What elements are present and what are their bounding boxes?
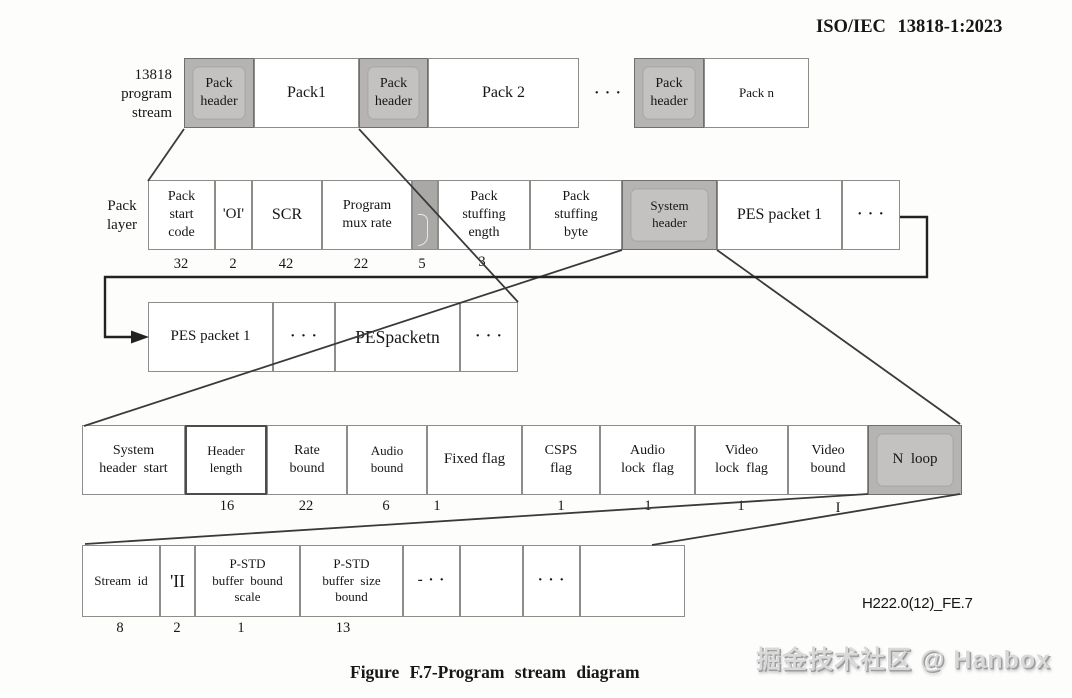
system-header-box: System header — [622, 180, 717, 250]
bitwidth-program-mux-rate: 22 — [346, 256, 376, 273]
figure-page: ISO/IEC 13818-1:2023 13818 program strea… — [0, 0, 1072, 698]
video-lock-flag-box: Video lock flag — [695, 425, 788, 495]
bitwidth-marker-bits: 2 — [218, 256, 248, 273]
audio-lock-flag-box: Audio lock flag — [600, 425, 695, 495]
pes-layer-ellipsis-1-box: · · · — [273, 302, 335, 372]
pack-layer-side-label: Pack layer — [98, 197, 146, 235]
pes-layer-packet-1-box: PES packet 1 — [148, 302, 273, 372]
standard-title: ISO/IEC 13818-1:2023 — [816, 17, 1002, 38]
stream-id-box: Stream id — [82, 545, 160, 617]
marker-bits-box: 'OI' — [215, 180, 252, 250]
pack-stuffing-byte-label: Pack stuffing byte — [554, 188, 597, 242]
pack-layer-ellipsis-box: · · · — [842, 180, 900, 250]
program-mux-rate-box: Program mux rate — [322, 180, 412, 250]
fixed-flag-label: Fixed flag — [444, 450, 505, 469]
rate-bound-label: Rate bound — [290, 442, 325, 478]
pack-ellipsis: · · · — [583, 76, 633, 112]
pack-header-2-box: Pack header — [359, 58, 428, 128]
pack-start-code-label: Pack start code — [168, 188, 195, 242]
pack-layer-ellipsis-label: · · · — [857, 205, 885, 224]
expand-line-system-header-right — [717, 250, 960, 424]
pack-stuffing-byte-box: Pack stuffing byte — [530, 180, 622, 250]
expand-line-n-loop-right — [652, 494, 960, 545]
stream-loop-ellipsis-2-label: · · · — [538, 571, 566, 590]
n-loop-label: N loop — [893, 450, 938, 469]
csps-flag-box: CSPS flag — [522, 425, 600, 495]
pack-header-1-label: Pack header — [200, 75, 237, 111]
pes-layer-packet-n-box: PESpacketn — [335, 302, 460, 372]
audio-bound-label: Audio bound — [371, 443, 404, 476]
video-lock-flag-label: Video lock flag — [715, 442, 768, 478]
audio-lock-flag-label: Audio lock flag — [621, 442, 674, 478]
pack-header-1-box: Pack header — [184, 58, 254, 128]
bitwidth-video-lock-flag: 1 — [726, 498, 756, 515]
program-stream-side-label: 13818 program stream — [96, 66, 172, 122]
bitwidth-scr: 42 — [271, 256, 301, 273]
header-length-label: Header length — [207, 443, 245, 476]
bitwidth-fixed-flag: 1 — [422, 498, 452, 515]
program-mux-rate-label: Program mux rate — [342, 197, 391, 233]
bitwidth-pack-start-code: 32 — [166, 256, 196, 273]
bitwidth-audio-bound: 6 — [371, 498, 401, 515]
reserved-box-mark — [418, 214, 428, 246]
marker-bits-label: 'OI' — [223, 205, 244, 224]
bitwidth-stream-marker: 2 — [162, 620, 192, 637]
bitwidth-audio-lock-flag: 1 — [633, 498, 663, 515]
figure-caption: Figure F.7-Program stream diagram — [350, 662, 640, 683]
pack-1-label: Pack1 — [287, 83, 326, 103]
pes-layer-packet-n-label: PESpacketn — [355, 326, 440, 348]
bitwidth-buffer-size-bound: 13 — [328, 620, 358, 637]
header-length-box: Header length — [185, 425, 267, 495]
pes-layer-ellipsis-2-box: · · · — [460, 302, 518, 372]
pack-n-box: Pack n — [704, 58, 809, 128]
bitwidth-csps-flag: 1 — [546, 498, 576, 515]
pack-start-code-box: Pack start code — [148, 180, 215, 250]
pes-packet-1-label: PES packet 1 — [737, 205, 822, 225]
bitwidth-buffer-bound-scale: 1 — [226, 620, 256, 637]
system-header-start-box: System header start — [82, 425, 185, 495]
system-header-start-label: System header start — [99, 442, 167, 478]
pack-stuffing-length-box: Pack stuffing ength — [438, 180, 530, 250]
fixed-flag-box: Fixed flag — [427, 425, 522, 495]
pack-stuffing-length-label: Pack stuffing ength — [462, 188, 505, 242]
pack-2-label: Pack 2 — [482, 83, 525, 103]
pes-packet-arrowhead — [131, 331, 149, 344]
bitwidth-video-bound: I — [823, 500, 853, 517]
bitwidth-rate-bound: 22 — [291, 498, 321, 515]
figure-code-label: H222.0(12)_FE.7 — [862, 595, 973, 612]
pstd-buffer-bound-scale-label: P-STD buffer bound scale — [212, 556, 283, 606]
stream-loop-ellipsis-1-box: - · · — [403, 545, 460, 617]
stream-loop-ellipsis-1-label: - · · — [418, 571, 446, 590]
pes-layer-ellipsis-1-label: · · · — [290, 327, 318, 346]
bitwidth-pack-stuffing-length: 3 — [467, 254, 497, 271]
stream-loop-empty-2-box — [580, 545, 685, 617]
stream-loop-empty-1-box — [460, 545, 523, 617]
bitwidth-header-length: 16 — [212, 498, 242, 515]
pes-layer-ellipsis-2-label: · · · — [475, 327, 503, 346]
video-bound-box: Video bound — [788, 425, 868, 495]
system-header-label: System header — [650, 198, 688, 231]
pes-packet-1-box: PES packet 1 — [717, 180, 842, 250]
pack-ellipsis-label: · · · — [594, 84, 622, 103]
bitwidth-stream-id: 8 — [105, 620, 135, 637]
scr-label: SCR — [272, 205, 302, 225]
pack-header-n-label: Pack header — [650, 75, 687, 111]
csps-flag-label: CSPS flag — [545, 442, 578, 478]
pack-2-box: Pack 2 — [428, 58, 579, 128]
stream-loop-ellipsis-2-box: · · · — [523, 545, 580, 617]
pstd-buffer-bound-scale-box: P-STD buffer bound scale — [195, 545, 300, 617]
bitwidth-reserved: 5 — [407, 256, 437, 273]
video-bound-label: Video bound — [811, 442, 846, 478]
pack-header-n-box: Pack header — [634, 58, 704, 128]
stream-marker-bits-box: 'II — [160, 545, 195, 617]
pack-header-2-label: Pack header — [375, 75, 412, 111]
audio-bound-box: Audio bound — [347, 425, 427, 495]
stream-id-label: Stream id — [94, 573, 147, 590]
pack-n-label: Pack n — [739, 85, 774, 102]
pes-layer-packet-1-label: PES packet 1 — [171, 327, 251, 346]
n-loop-box: N loop — [868, 425, 962, 495]
stream-marker-bits-label: 'II — [170, 570, 185, 592]
pstd-buffer-size-bound-label: P-STD buffer size bound — [322, 556, 380, 606]
reserved-box — [412, 180, 438, 250]
watermark-text: 掘金技术社区 @ Hanbox — [756, 640, 1051, 676]
expand-line-pack-header-1 — [148, 129, 184, 181]
rate-bound-box: Rate bound — [267, 425, 347, 495]
scr-box: SCR — [252, 180, 322, 250]
pstd-buffer-size-bound-box: P-STD buffer size bound — [300, 545, 403, 617]
pack-1-box: Pack1 — [254, 58, 359, 128]
